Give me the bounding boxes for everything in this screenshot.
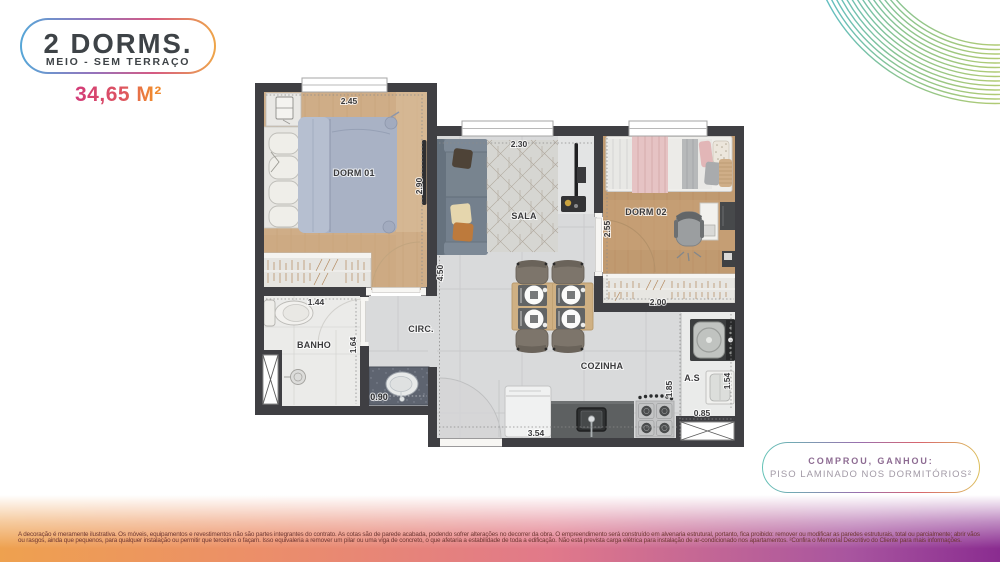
svg-text:2.90: 2.90 (414, 177, 424, 194)
svg-text:DORM 02: DORM 02 (625, 207, 666, 217)
svg-text:CIRC.: CIRC. (408, 324, 434, 334)
svg-text:4.50: 4.50 (435, 264, 445, 281)
svg-text:2.45: 2.45 (341, 96, 358, 106)
svg-text:0.90: 0.90 (370, 392, 388, 402)
svg-text:1.54: 1.54 (722, 372, 732, 389)
svg-text:BANHO: BANHO (297, 340, 331, 350)
svg-text:3.54: 3.54 (528, 428, 545, 438)
svg-text:1.64: 1.64 (348, 336, 358, 353)
svg-text:1.85: 1.85 (664, 380, 674, 397)
svg-text:A.S: A.S (684, 373, 700, 383)
svg-text:SALA: SALA (511, 211, 537, 221)
svg-text:COZINHA: COZINHA (581, 361, 624, 371)
svg-text:2.55: 2.55 (602, 220, 612, 237)
svg-text:2.30: 2.30 (511, 139, 528, 149)
svg-text:DORM 01: DORM 01 (333, 168, 374, 178)
svg-text:2.00: 2.00 (650, 297, 667, 307)
svg-text:1.44: 1.44 (308, 297, 325, 307)
svg-text:0.85: 0.85 (694, 408, 711, 418)
